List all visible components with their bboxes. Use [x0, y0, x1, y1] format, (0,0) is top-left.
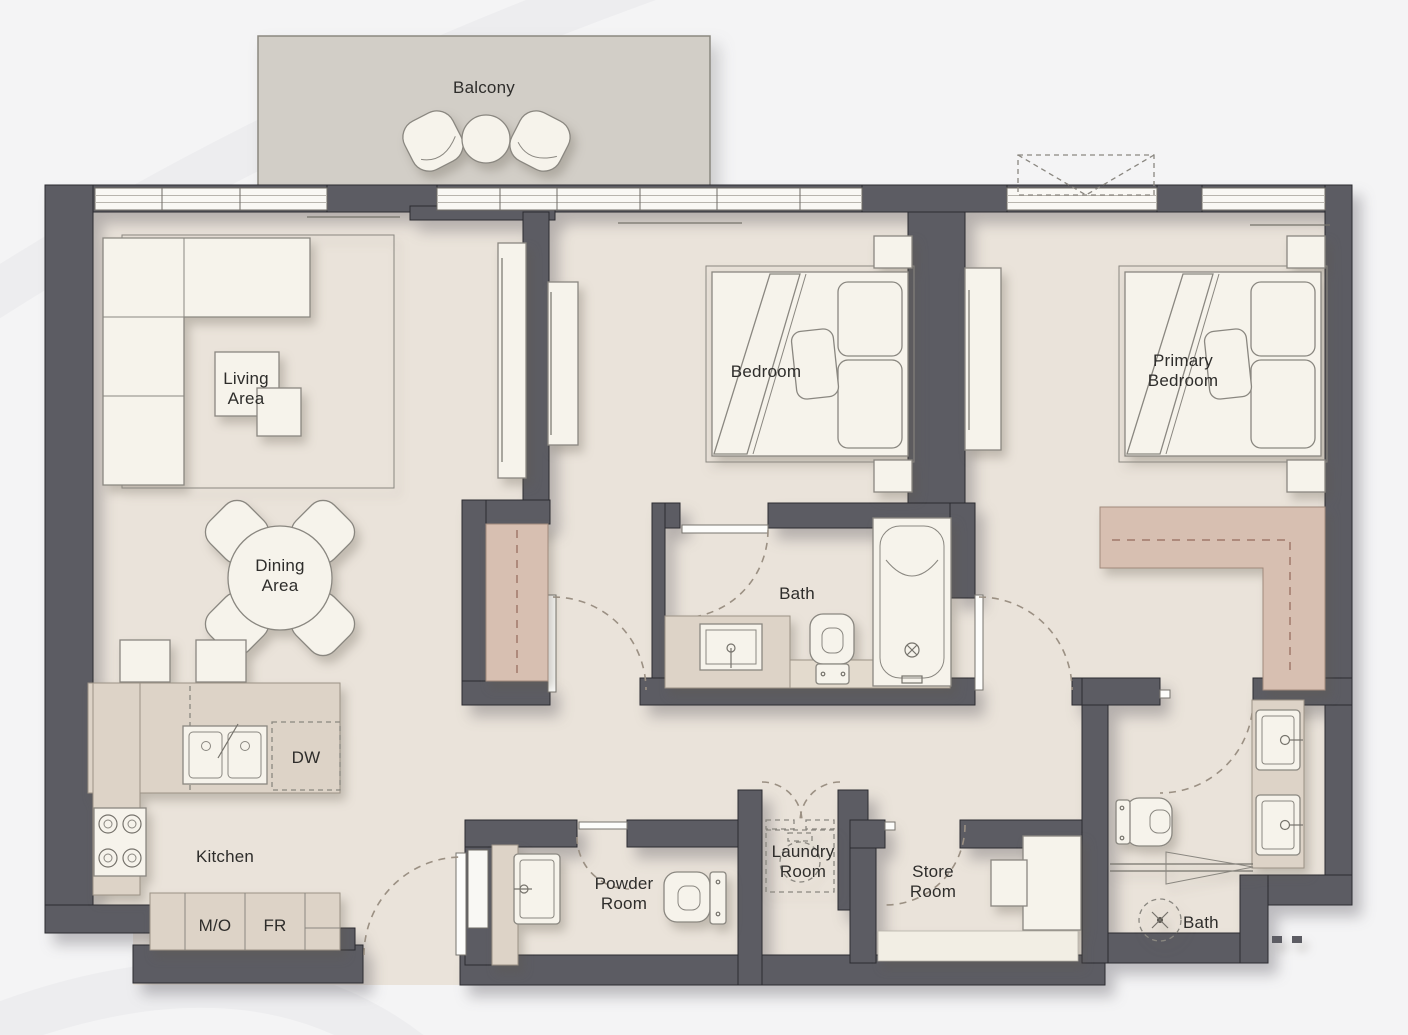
store-room-label-line2: Room [910, 882, 956, 901]
wall-left [45, 185, 93, 933]
background-swoosh [0, 985, 460, 1035]
bar-stool [196, 640, 246, 682]
fridge-label: FR [263, 916, 286, 935]
store-room-label-line1: Store [912, 862, 954, 881]
wall-pier [1157, 185, 1202, 212]
store-wall-north-left [850, 820, 885, 848]
window-living [95, 188, 327, 210]
toilet [810, 614, 854, 684]
dresser [965, 268, 1001, 450]
nightstand [1287, 460, 1325, 492]
wall-right [1325, 185, 1352, 880]
balcony-area [258, 36, 710, 197]
fixture [1292, 936, 1302, 943]
pillow [838, 282, 902, 356]
primary-bedroom-label-line2: Bedroom [1148, 371, 1218, 390]
powder-wall-north-right [627, 820, 738, 847]
ensuite-wall-west [1082, 678, 1108, 963]
kitchen-sink [183, 724, 267, 784]
living-area-label-line2: Area [228, 389, 265, 408]
dining-area-label-line2: Area [262, 576, 299, 595]
wall-living-hall [523, 212, 549, 517]
pillow [1251, 282, 1315, 356]
bathtub [873, 518, 951, 686]
dining-area-label-line1: Dining [255, 556, 304, 575]
pillow [1251, 360, 1315, 448]
pillow [838, 360, 902, 448]
laundry-room-label-line1: Laundry [772, 842, 835, 861]
powder-sink [514, 854, 560, 924]
store-lower-shelf [878, 931, 1078, 961]
store-shelf [1023, 836, 1081, 930]
bath-label: Bath [779, 584, 815, 603]
nightstand [1287, 236, 1325, 268]
wall-pier [862, 185, 1007, 212]
powder-wall-east [738, 790, 762, 985]
ensuite-sink [1256, 710, 1303, 770]
primary-bedroom-label-line1: Primary [1153, 351, 1213, 370]
toilet [664, 872, 726, 924]
powder-wall-north-left [465, 820, 577, 847]
kitchen-counter-bottom: M/O FR [150, 893, 340, 950]
window-primary-right [1202, 188, 1325, 210]
wall-bottom-kitchen [133, 945, 363, 983]
nightstand [874, 236, 912, 268]
window-primary-left [1007, 188, 1157, 210]
balcony-table [462, 115, 510, 163]
toilet [1116, 798, 1172, 846]
kitchen-label: Kitchen [196, 847, 254, 866]
powder-room-label-line1: Powder [595, 874, 654, 893]
powder-room-label-line2: Room [601, 894, 647, 913]
powder-wall-panel [468, 850, 488, 928]
wardrobe-panel [548, 282, 578, 445]
wall-bedroom-divider [908, 212, 965, 503]
living-area-label-line1: Living [223, 369, 269, 388]
ensuite-bath-label: Bath [1183, 913, 1219, 932]
bath-wall-west [652, 503, 665, 705]
fixture [1272, 936, 1282, 943]
closet-wall-bottom [462, 681, 550, 705]
dishwasher-label: DW [292, 748, 321, 767]
ensuite-wall-north-left [1082, 678, 1160, 705]
closet-wall-left [462, 500, 486, 705]
bedroom-label: Bedroom [731, 362, 801, 381]
microwave-label: M/O [199, 916, 232, 935]
stove [94, 808, 146, 876]
floor-plan-canvas: DW M/O FR [0, 0, 1408, 1035]
window-balcony-front [437, 188, 862, 210]
laundry-room-label-line2: Room [780, 862, 826, 881]
store-box [991, 860, 1027, 906]
bath-wall-east [950, 503, 975, 598]
bar-stool [120, 640, 170, 682]
wall-step-right-vert [1240, 875, 1268, 963]
balcony-label: Balcony [453, 78, 515, 97]
bathroom-sink [700, 624, 762, 670]
ensuite-sink [1256, 795, 1303, 855]
nightstand [874, 460, 912, 492]
